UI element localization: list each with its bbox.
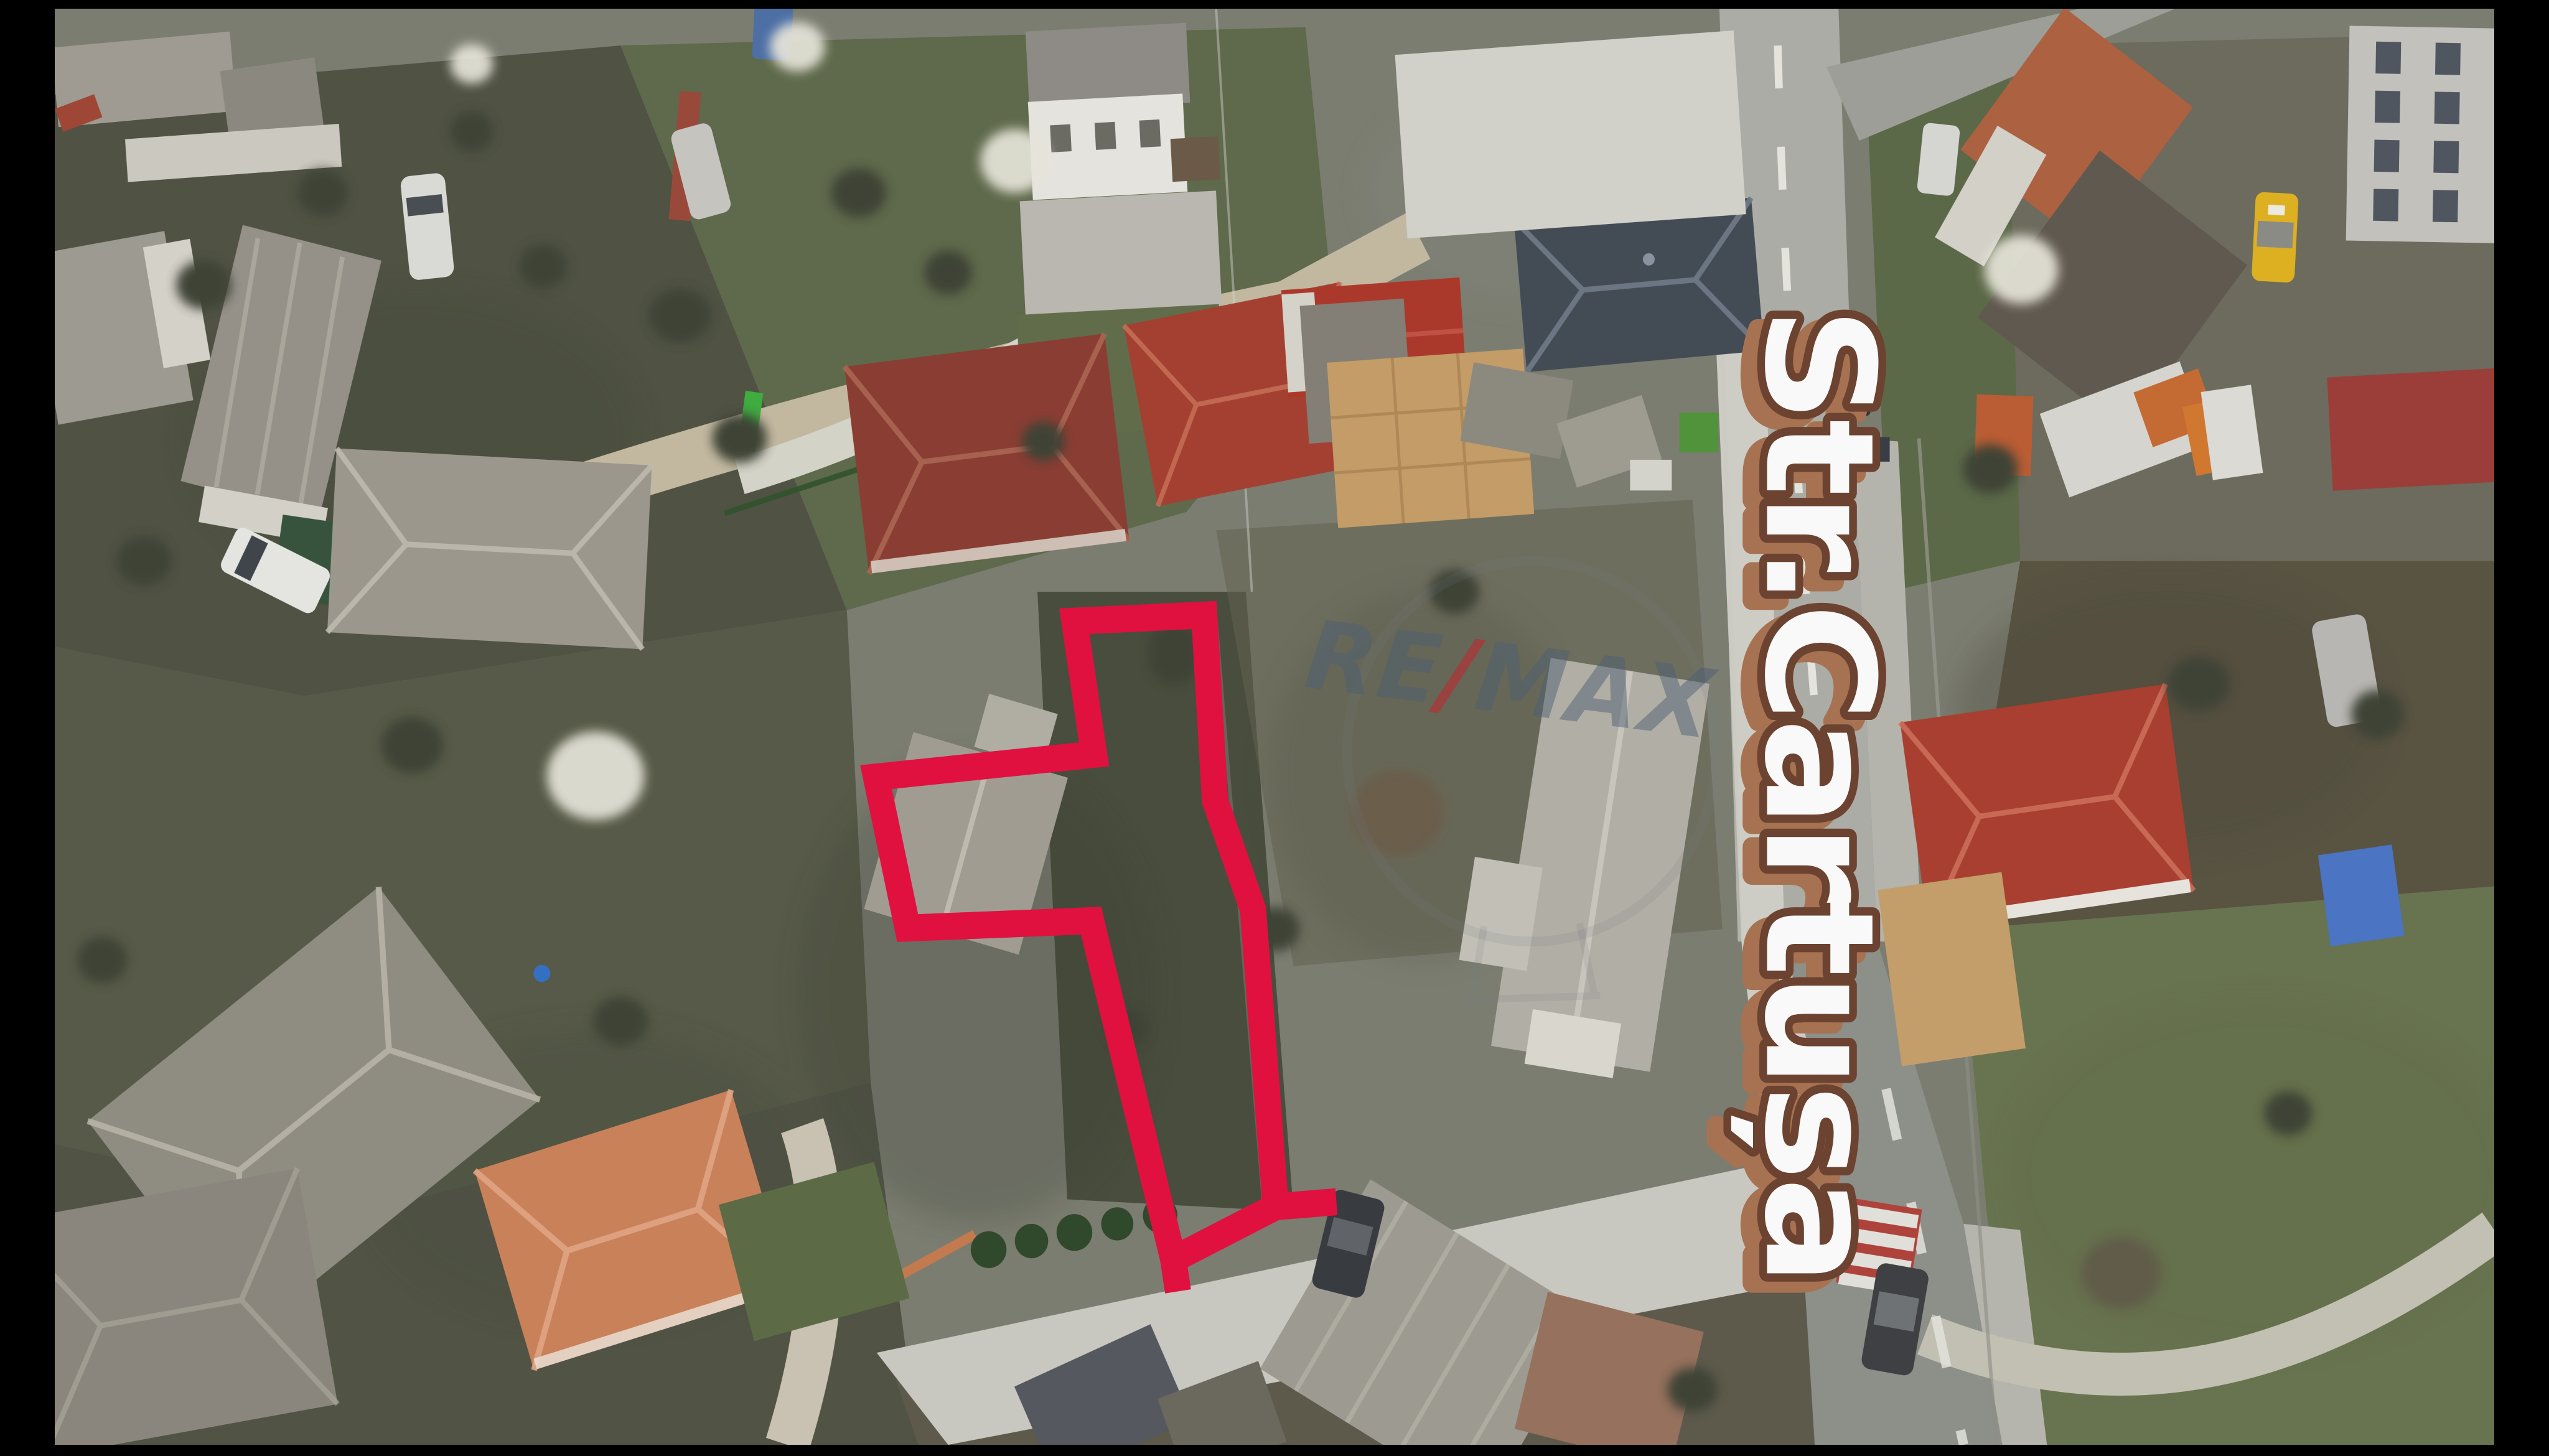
aerial-photo: RE/MAX Str.Cartușa Str.Cartușa <box>55 9 2494 1445</box>
letterbox-bar-top <box>0 0 2549 9</box>
video-frame: RE/MAX Str.Cartușa Str.Cartușa <box>0 0 2549 1456</box>
letterbox-bar-bottom <box>0 1445 2549 1456</box>
letterbox-bar-left <box>0 0 55 1456</box>
aerial-scene: RE/MAX Str.Cartușa Str.Cartușa <box>55 9 2494 1445</box>
letterbox-bar-right <box>2494 0 2549 1456</box>
photo-tint <box>55 9 2494 1445</box>
